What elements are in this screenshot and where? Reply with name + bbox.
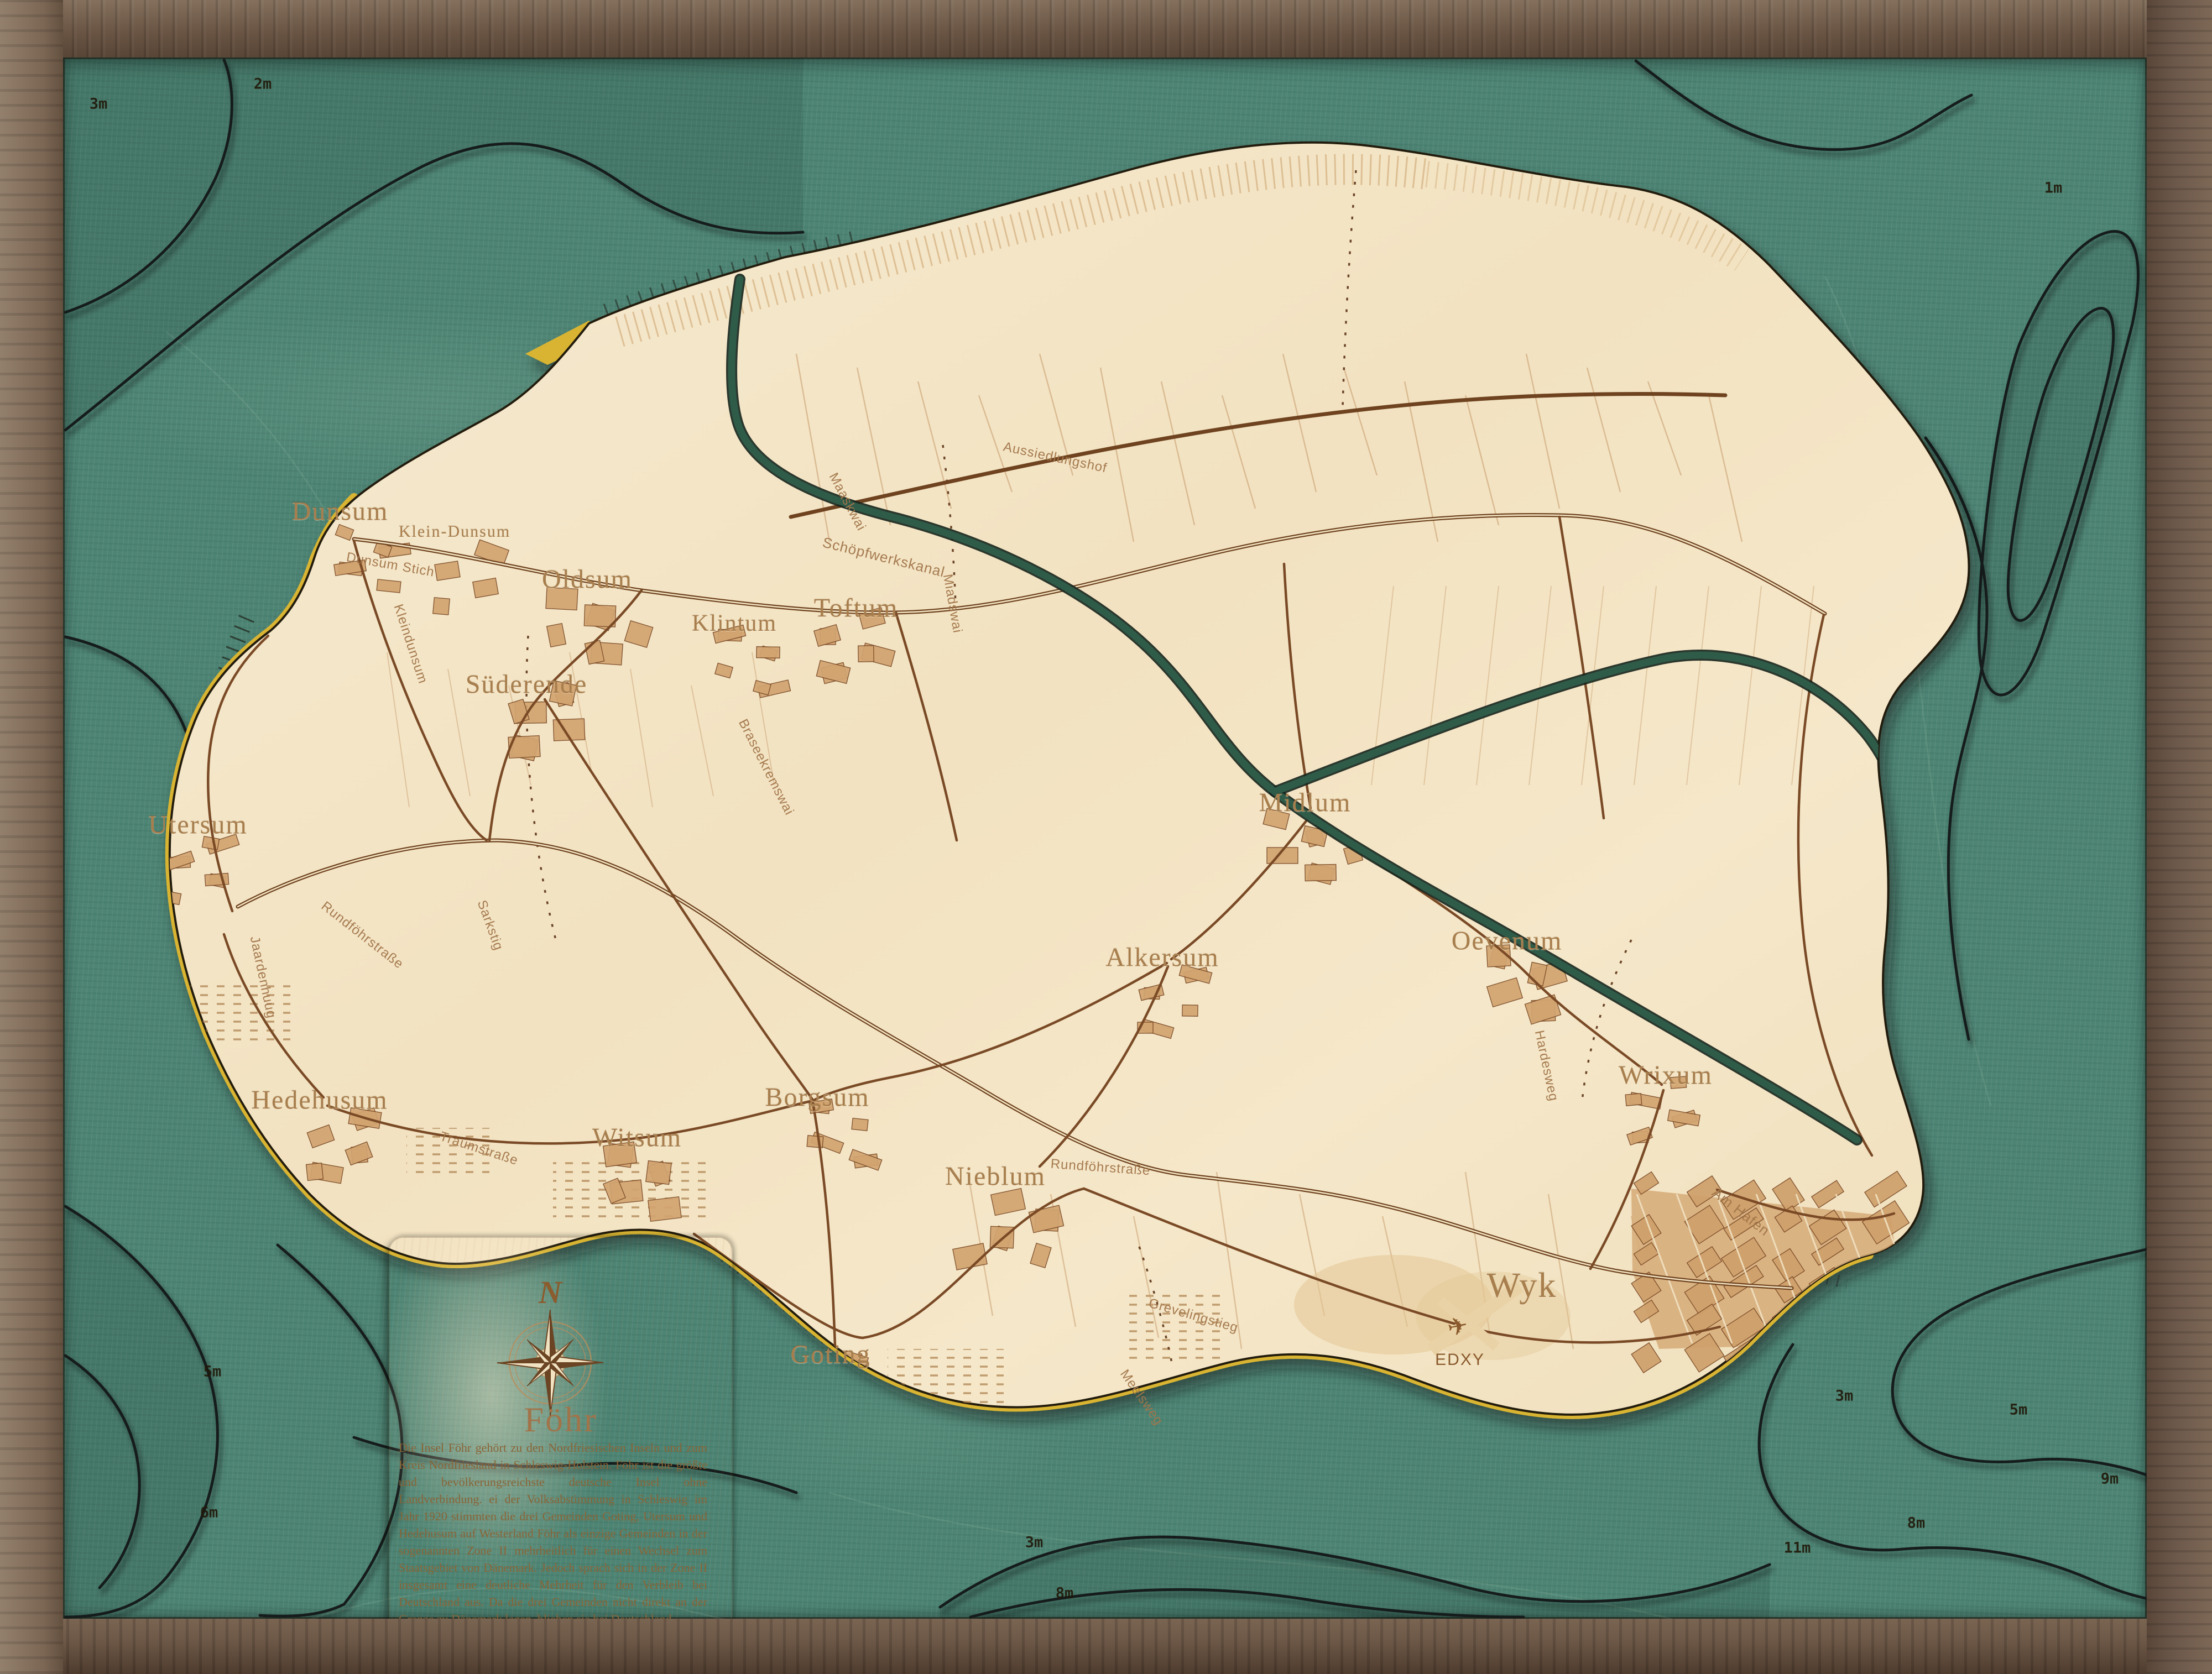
compass-north-letter: N bbox=[538, 1274, 563, 1310]
frame-top bbox=[0, 0, 2212, 57]
frame-left bbox=[0, 0, 63, 1674]
map-artwork bbox=[0, 0, 2212, 1674]
frame-bottom bbox=[0, 1619, 2212, 1674]
frame-right bbox=[2147, 0, 2212, 1674]
wood-map-board: 3m2m1m5m6m3m8m3m5m11m8m9m DunsumKlein-Du… bbox=[0, 0, 2212, 1674]
legend-panel: N Föhr Die Insel Föhr gehört zu den Nord… bbox=[389, 1237, 733, 1631]
legend-description: Die Insel Föhr gehört zu den Nordfriesis… bbox=[399, 1439, 707, 1628]
legend-title: Föhr bbox=[389, 1399, 733, 1440]
